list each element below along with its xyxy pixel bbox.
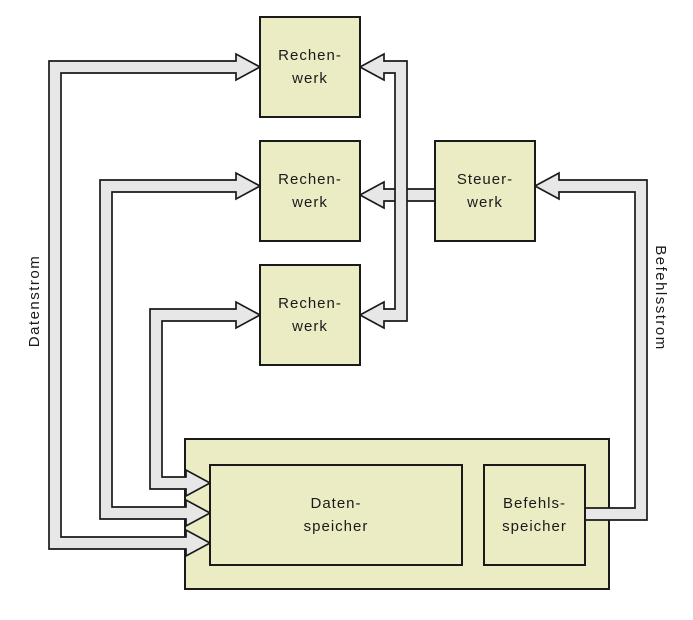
rechenwerk-bottom-box (260, 265, 360, 365)
diagram-canvas: Rechen- werk Rechen- werk Rechen- werk S… (0, 0, 693, 620)
datenspeicher-box (210, 465, 462, 565)
rechenwerk-top-box (260, 17, 360, 117)
befehlsspeicher-box (484, 465, 585, 565)
rechenwerk-middle-box (260, 141, 360, 241)
diagram-svg (0, 0, 693, 620)
steuerwerk-box (435, 141, 535, 241)
